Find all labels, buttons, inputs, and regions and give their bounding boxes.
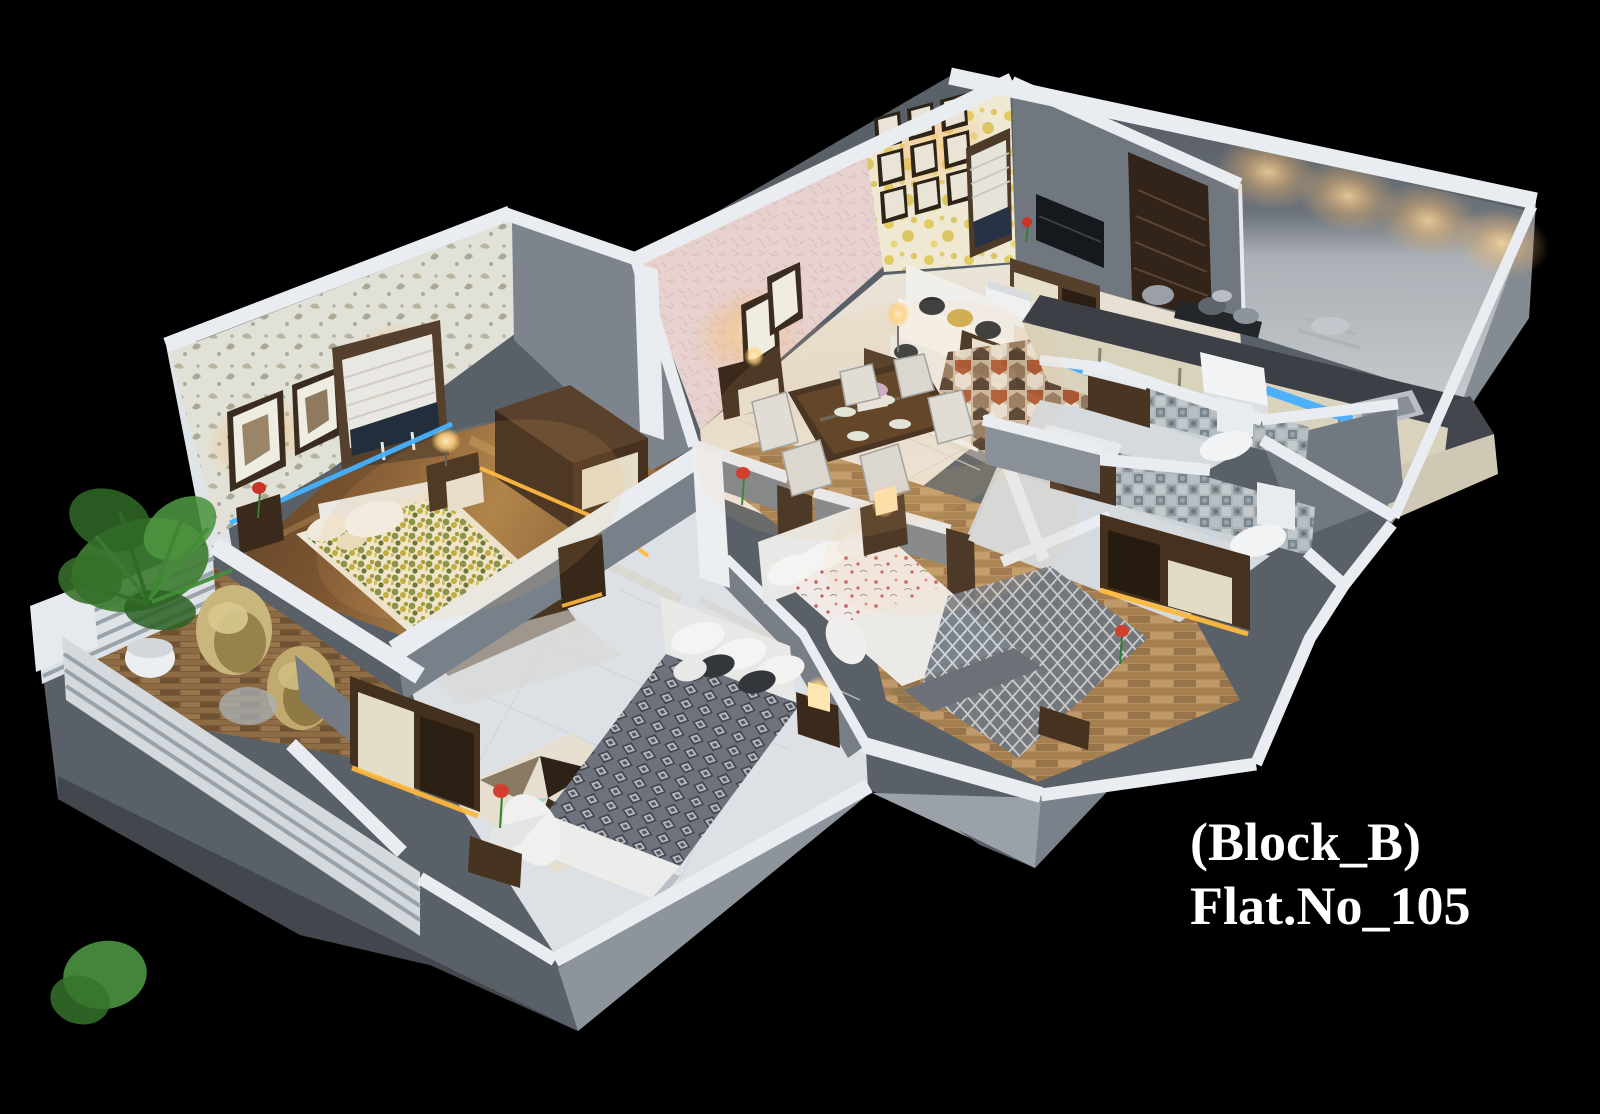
svg-text:Flat.No_105: Flat.No_105 xyxy=(1190,876,1470,936)
svg-text:(Block_B): (Block_B) xyxy=(1190,812,1421,872)
